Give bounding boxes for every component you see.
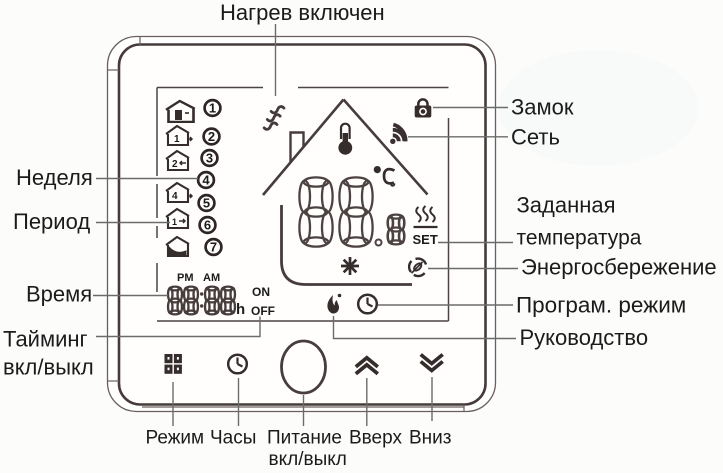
- svg-text:7: 7: [210, 240, 217, 255]
- svg-text:1: 1: [172, 217, 177, 227]
- svg-text:Режим: Режим: [146, 428, 205, 449]
- svg-text:Неделя: Неделя: [16, 165, 93, 190]
- svg-text:Время: Время: [26, 282, 92, 307]
- svg-text:Часы: Часы: [210, 428, 256, 449]
- svg-text:Сеть: Сеть: [511, 125, 560, 150]
- svg-text:AM: AM: [203, 272, 220, 284]
- svg-text:Энергосбережение: Энергосбережение: [521, 255, 717, 280]
- svg-text:вкл/выкл: вкл/выкл: [269, 449, 347, 470]
- svg-text:4: 4: [202, 173, 210, 188]
- svg-text:Тайминг: Тайминг: [3, 327, 88, 352]
- svg-text:2: 2: [172, 159, 178, 170]
- svg-text:вкл/выкл: вкл/выкл: [3, 355, 94, 380]
- svg-text:Замок: Замок: [511, 95, 574, 120]
- svg-text:6: 6: [204, 218, 211, 233]
- svg-text:OFF: OFF: [251, 304, 275, 318]
- svg-text:PM: PM: [177, 272, 194, 284]
- svg-text:Нагрев включен: Нагрев включен: [220, 0, 385, 25]
- svg-text:4: 4: [172, 191, 178, 202]
- svg-text:1: 1: [209, 101, 216, 116]
- svg-text:Вниз: Вниз: [409, 428, 452, 449]
- svg-text:5: 5: [203, 196, 210, 211]
- svg-text:1: 1: [174, 134, 180, 145]
- svg-text:3: 3: [206, 151, 213, 166]
- svg-text:ON: ON: [252, 285, 270, 299]
- svg-text:h: h: [236, 301, 245, 318]
- svg-text:Вверх: Вверх: [349, 428, 402, 449]
- svg-text:температура: температура: [517, 227, 642, 250]
- svg-text:Програм. режим: Програм. режим: [516, 293, 686, 318]
- svg-text:SET: SET: [413, 232, 438, 247]
- svg-text:2: 2: [208, 129, 215, 144]
- svg-text:Период: Период: [13, 209, 90, 234]
- svg-text:Питание: Питание: [267, 428, 342, 449]
- svg-text:Руководство: Руководство: [520, 325, 649, 350]
- svg-text:Заданная: Заданная: [517, 193, 616, 218]
